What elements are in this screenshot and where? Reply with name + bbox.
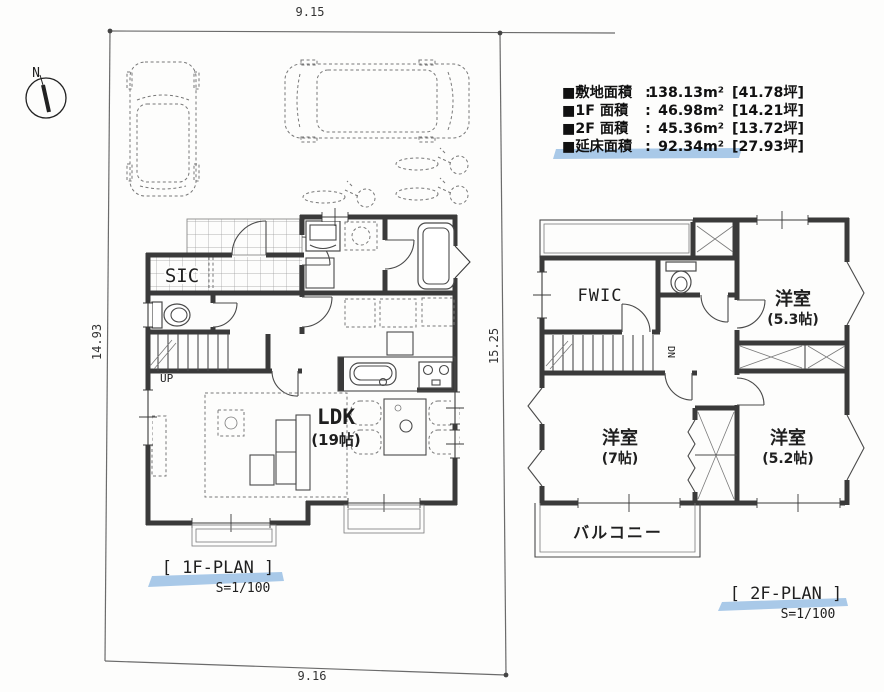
room-label-ldk: LDK (317, 405, 355, 429)
bicycle-icon (303, 181, 375, 207)
stairs-up-label: UP (160, 372, 174, 385)
area-row-value: 92.34m² (658, 139, 724, 155)
north-label: N (32, 66, 40, 81)
stairs-up: UP (150, 334, 228, 385)
bathtub (418, 223, 454, 289)
area-row-value: 45.36m² (658, 121, 724, 137)
dim-right: 15.25 (487, 328, 501, 364)
room-label-b-size: (7帖) (602, 450, 639, 467)
roof-area (540, 220, 693, 257)
dim-top: 9.15 (296, 5, 325, 19)
area-row-label: ■敷地面積 (562, 84, 633, 101)
floorplan-sheet: 9.15 9.16 14.93 15.25 N (0, 0, 884, 692)
area-row-colon: : (645, 121, 651, 137)
area-summary: ■敷地面積 : 138.13m² [41.78坪] ■1F 面積 : 46.98… (553, 84, 804, 159)
floor1-plan: UP (139, 208, 470, 546)
window (139, 390, 157, 445)
kitchen-counter (338, 357, 455, 391)
window (455, 246, 470, 278)
room-label-c: 洋室 (770, 427, 806, 449)
window (446, 392, 464, 424)
room-label-c-size: (5.2帖) (762, 450, 814, 467)
dim-bottom: 9.16 (298, 669, 327, 683)
area-row: ■1F 面積 : 46.98m² [14.21坪] (562, 102, 804, 119)
window (533, 272, 551, 318)
car-icon (285, 60, 469, 142)
area-row: ■2F 面積 : 45.36m² [13.72坪] (562, 120, 804, 137)
toilet-fixture (152, 302, 190, 328)
floor2-title-text: [ 2F-PLAN ] (730, 584, 843, 604)
bicycle-icon (396, 148, 468, 174)
window (757, 494, 840, 512)
room-label-balcony: バルコニー (573, 523, 663, 542)
bicycle-icon (396, 178, 468, 204)
room-label-fwic: FWIC (578, 286, 623, 306)
dim-left: 14.93 (90, 324, 104, 360)
north-compass: N (26, 66, 66, 118)
floorplan-drawing: 9.15 9.16 14.93 15.25 N (0, 0, 884, 692)
area-row-label: ■2F 面積 (562, 120, 629, 137)
dining-set (351, 399, 459, 455)
kitchen-wall-cap (338, 357, 344, 391)
area-row-tsubo: [14.21坪] (732, 103, 804, 119)
entry-porch (187, 219, 302, 255)
washroom-fixtures (306, 221, 377, 288)
area-row-tsubo: [41.78坪] (732, 85, 804, 101)
area-row-tsubo: [27.93坪] (732, 139, 804, 155)
fridge-pantry (345, 298, 454, 355)
window (757, 211, 808, 229)
floor1-title: [ 1F-PLAN ] S=1/100 (148, 558, 284, 596)
floor2-title: [ 2F-PLAN ] S=1/100 (718, 584, 848, 622)
area-row-tsubo: [13.72坪] (732, 121, 804, 137)
stairs-down-label: DN (665, 346, 676, 358)
floor1-title-text: [ 1F-PLAN ] (162, 558, 275, 578)
room-label-a: 洋室 (775, 288, 811, 310)
room-label-sic: SIC (165, 265, 199, 287)
room-label-a-size: (5.3帖) (767, 311, 819, 328)
area-row: ■敷地面積 : 138.13m² [41.78坪] (562, 84, 804, 101)
window (578, 494, 680, 512)
area-row-label: ■延床面積 (562, 138, 633, 155)
car-icon (127, 62, 199, 196)
area-row-value: 138.13m² (648, 85, 724, 101)
room-label-ldk-size: (19帖) (311, 431, 361, 449)
area-row-colon: : (645, 139, 651, 155)
toilet-fixture (666, 262, 696, 293)
stairs-down: DN (546, 335, 676, 371)
window (143, 303, 153, 327)
floor2-plan: DN (528, 211, 864, 557)
area-row-value: 46.98m² (658, 103, 724, 119)
area-row-label: ■1F 面積 (562, 102, 629, 119)
floor1-scale-text: S=1/100 (216, 581, 271, 596)
floor2-scale-text: S=1/100 (781, 607, 836, 622)
area-row: ■延床面積 : 92.34m² [27.93坪] (562, 138, 804, 155)
room-label-b: 洋室 (602, 427, 638, 449)
area-row-colon: : (645, 103, 651, 119)
